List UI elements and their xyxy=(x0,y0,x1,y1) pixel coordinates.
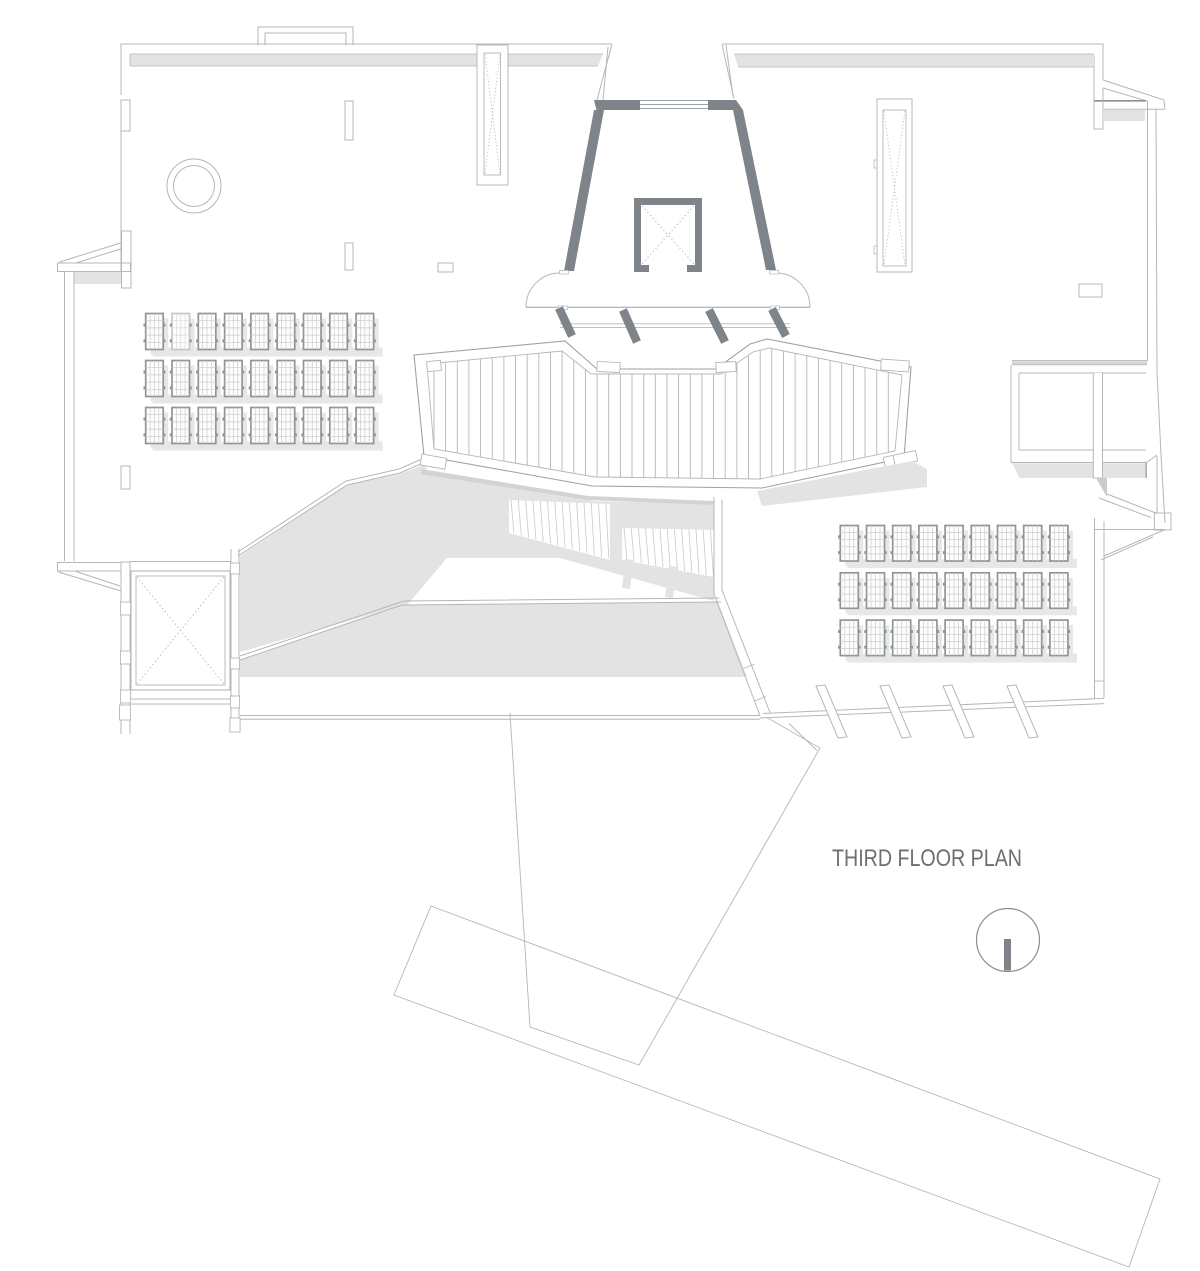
svg-text:THIRD FLOOR PLAN: THIRD FLOOR PLAN xyxy=(832,845,1022,872)
